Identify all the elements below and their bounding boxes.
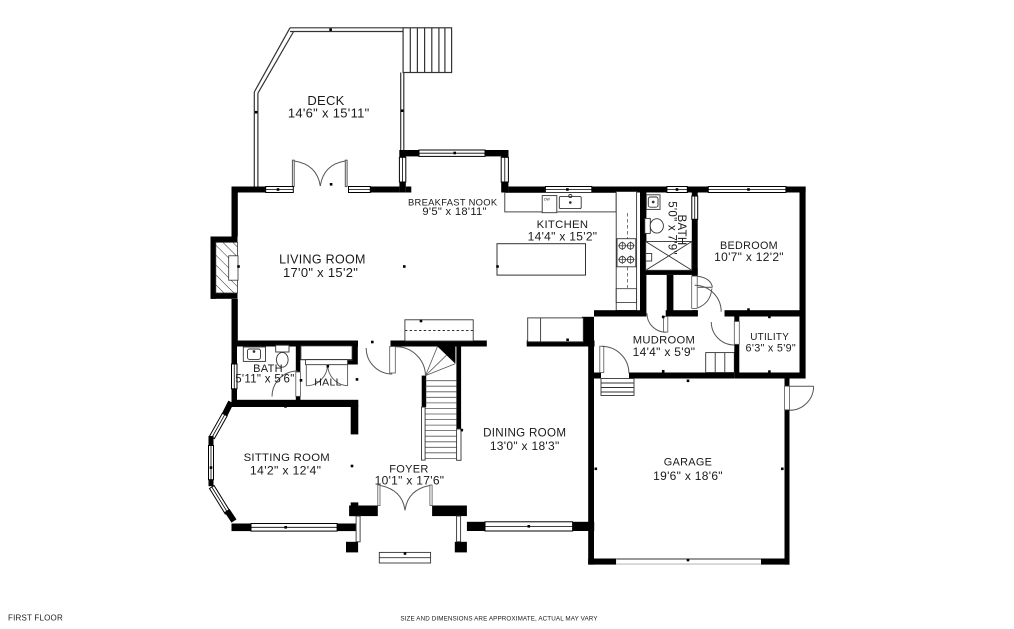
svg-text:DINING ROOM: DINING ROOM	[483, 427, 566, 440]
svg-text:GARAGE: GARAGE	[664, 456, 712, 468]
svg-text:10'7" x 12'2": 10'7" x 12'2"	[714, 250, 784, 264]
svg-text:17'0" x 15'2": 17'0" x 15'2"	[283, 265, 358, 280]
svg-text:BATH: BATH	[675, 214, 687, 245]
svg-text:SIZE AND DIMENSIONS ARE APPROX: SIZE AND DIMENSIONS ARE APPROXIMATE, ACT…	[400, 616, 598, 623]
svg-text:SITTING ROOM: SITTING ROOM	[244, 452, 330, 464]
svg-text:14'2" x 12'4": 14'2" x 12'4"	[250, 464, 321, 478]
svg-text:5'11" x 5'6": 5'11" x 5'6"	[235, 373, 294, 385]
svg-text:HALL: HALL	[314, 377, 341, 389]
svg-text:14'4" x 5'9": 14'4" x 5'9"	[633, 345, 696, 359]
svg-text:9'5" x 18'11": 9'5" x 18'11"	[422, 206, 486, 218]
svg-text:UTILITY: UTILITY	[750, 332, 789, 343]
svg-text:FIRST FLOOR: FIRST FLOOR	[8, 614, 63, 623]
svg-text:14'4" x 15'2": 14'4" x 15'2"	[528, 229, 598, 243]
svg-text:10'1" x 17'6": 10'1" x 17'6"	[375, 473, 445, 487]
svg-text:13'0" x 18'3": 13'0" x 18'3"	[490, 439, 560, 453]
svg-text:DW: DW	[544, 198, 551, 202]
svg-text:19'6" x 18'6": 19'6" x 18'6"	[653, 469, 723, 483]
svg-text:14'6" x 15'11": 14'6" x 15'11"	[288, 106, 370, 121]
svg-text:6'3" x 5'9": 6'3" x 5'9"	[746, 343, 797, 355]
